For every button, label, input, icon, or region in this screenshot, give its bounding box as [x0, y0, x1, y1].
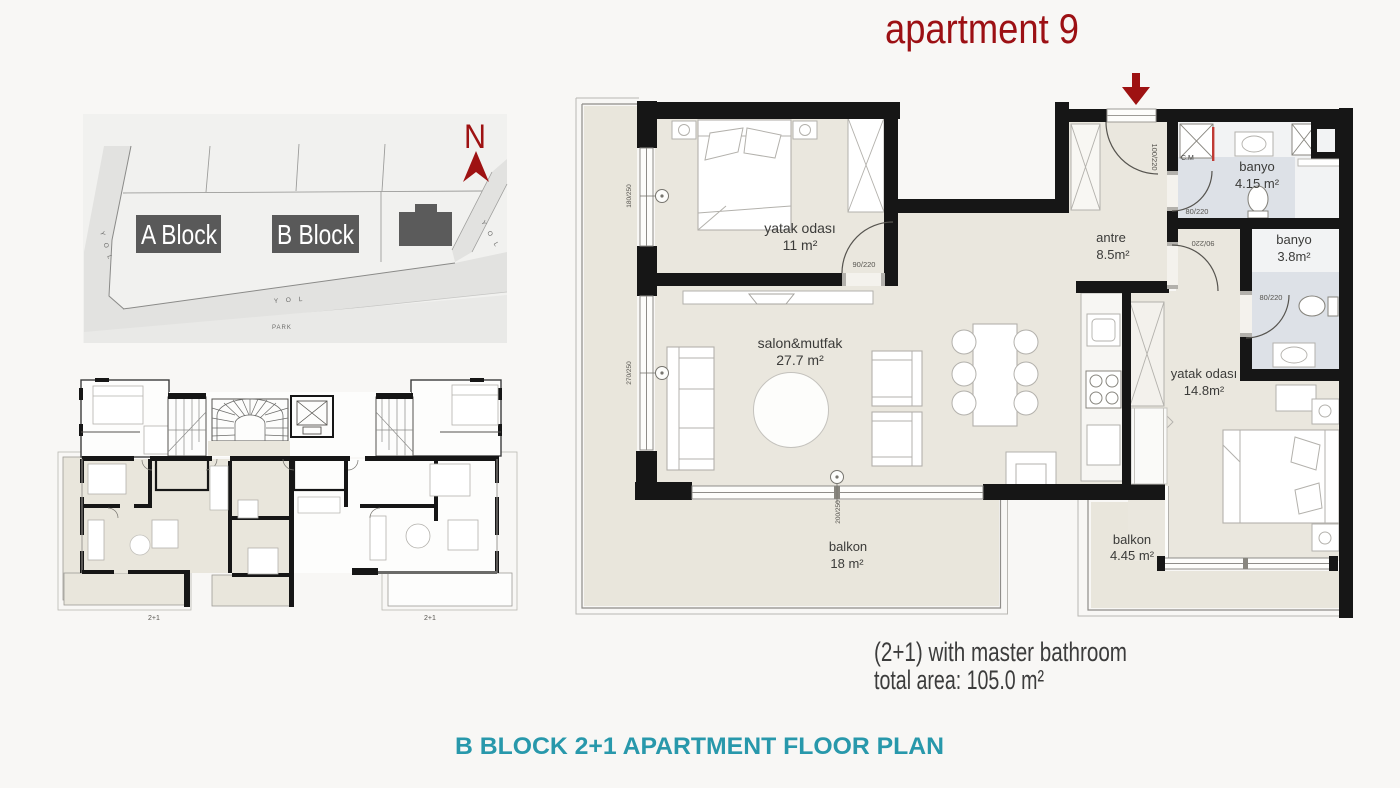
svg-text:27.7 m²: 27.7 m² — [776, 352, 824, 368]
svg-text:90/220: 90/220 — [1192, 239, 1215, 248]
svg-text:11 m²: 11 m² — [783, 237, 818, 253]
svg-text:100/220: 100/220 — [1150, 143, 1159, 170]
svg-text:2+1: 2+1 — [148, 615, 160, 622]
svg-text:2+1: 2+1 — [424, 615, 436, 622]
svg-text:balkon: balkon — [829, 539, 867, 554]
svg-text:8.5m²: 8.5m² — [1096, 247, 1130, 262]
svg-text:C.M: C.M — [1181, 155, 1194, 162]
svg-text:B BLOCK 2+1 APARTMENT FLOOR PL: B BLOCK 2+1 APARTMENT FLOOR PLAN — [455, 733, 944, 760]
svg-text:banyo: banyo — [1276, 232, 1311, 247]
svg-text:N: N — [464, 118, 486, 156]
svg-text:14.8m²: 14.8m² — [1184, 383, 1225, 398]
svg-text:PARK: PARK — [272, 325, 292, 331]
svg-text:(2+1) with master bathroom: (2+1) with master bathroom — [874, 637, 1127, 667]
svg-text:80/220: 80/220 — [1186, 207, 1209, 216]
svg-text:A Block: A Block — [141, 219, 218, 250]
svg-text:4.45 m²: 4.45 m² — [1110, 548, 1155, 563]
svg-text:banyo: banyo — [1239, 159, 1274, 174]
svg-text:yatak odası: yatak odası — [1171, 366, 1238, 381]
svg-text:270/250: 270/250 — [626, 361, 633, 385]
svg-text:18 m²: 18 m² — [830, 556, 864, 571]
svg-text:4.15 m²: 4.15 m² — [1235, 176, 1280, 191]
svg-text:3.8m²: 3.8m² — [1277, 249, 1311, 264]
svg-text:balkon: balkon — [1113, 532, 1151, 547]
svg-text:total area: 105.0 m²: total area: 105.0 m² — [874, 665, 1044, 695]
svg-text:antre: antre — [1096, 230, 1126, 245]
svg-text:180/250: 180/250 — [626, 184, 633, 208]
svg-text:90/220: 90/220 — [853, 260, 876, 269]
svg-text:yatak odası: yatak odası — [764, 220, 836, 236]
svg-text:apartment 9: apartment 9 — [885, 5, 1079, 52]
svg-text:200/250: 200/250 — [835, 500, 842, 524]
svg-text:B Block: B Block — [277, 219, 355, 250]
svg-text:80/220: 80/220 — [1260, 293, 1283, 302]
svg-text:salon&mutfak: salon&mutfak — [758, 335, 844, 351]
